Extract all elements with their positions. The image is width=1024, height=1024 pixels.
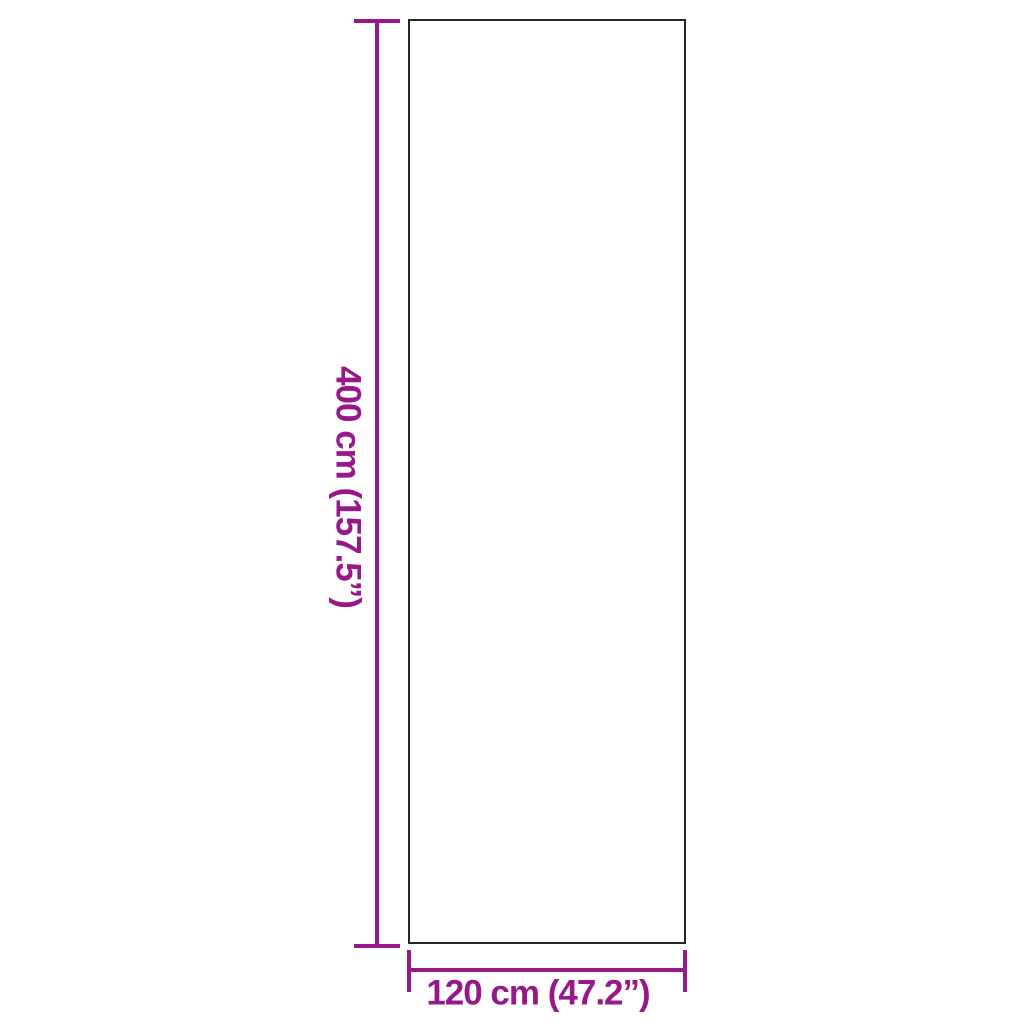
dimension-diagram: 400 cm (157.5”) 120 cm (47.2”)	[0, 0, 1024, 1024]
width-dimension-label: 120 cm (47.2”)	[426, 976, 649, 1011]
height-dimension-cap-top	[354, 19, 400, 23]
width-dimension-cap-left	[407, 950, 411, 992]
product-outline-rectangle	[408, 19, 686, 944]
height-dimension-label: 400 cm (157.5”)	[331, 366, 366, 608]
width-dimension-line	[407, 968, 687, 972]
width-dimension-cap-right	[683, 950, 687, 992]
height-dimension-line	[375, 19, 379, 948]
height-dimension-cap-bottom	[354, 944, 400, 948]
